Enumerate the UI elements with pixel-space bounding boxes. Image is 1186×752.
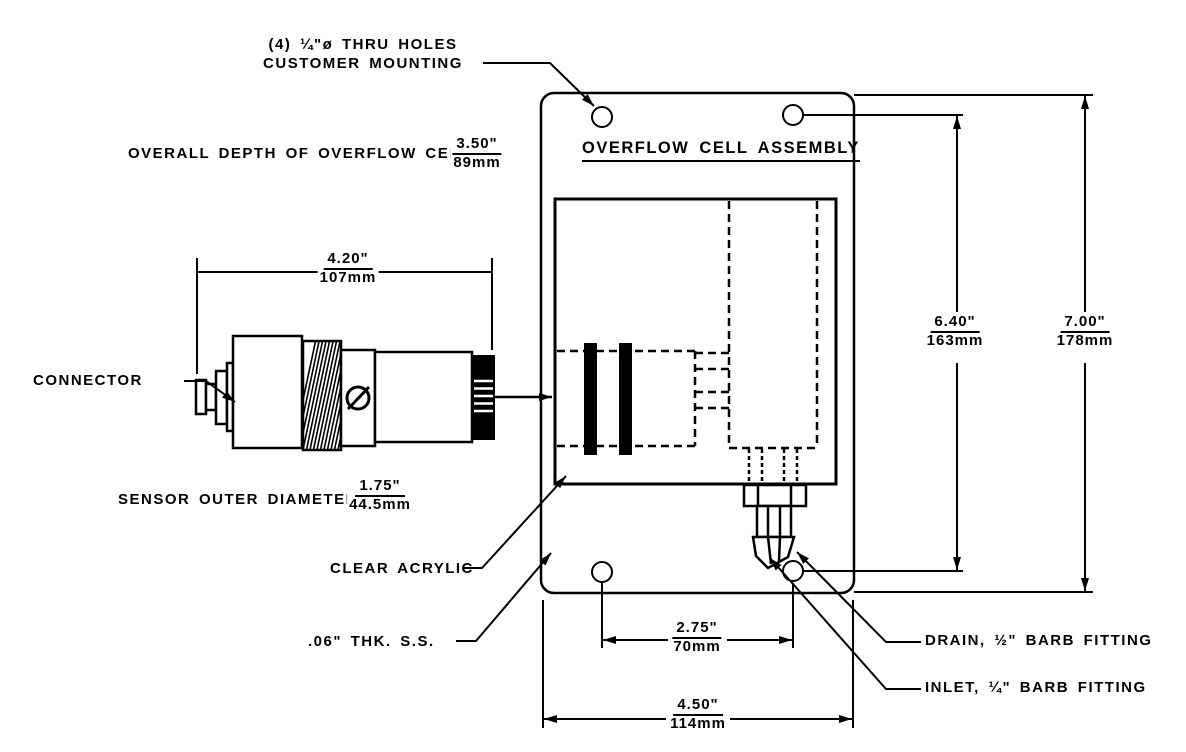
hole-span-height-dimension: 6.40" 163mm — [925, 314, 986, 350]
leader-thru-holes — [483, 63, 594, 106]
thru-holes-callout: (4) ¼"ø THRU HOLES CUSTOMER MOUNTING — [248, 36, 478, 74]
mounting-hole-bottom-left — [592, 562, 612, 582]
sensor-od-label: SENSOR OUTER DIAMETER — [118, 491, 358, 510]
assembly-title: OVERFLOW CELL ASSEMBLY — [582, 139, 860, 162]
sensor-barrel — [375, 352, 472, 442]
drain-fitting-body — [757, 506, 791, 537]
hole-span-width-dimension: 2.75" 70mm — [670, 620, 723, 656]
sensor-od-inches: 1.75" — [355, 478, 404, 497]
overall-depth-label: OVERALL DEPTH OF OVERFLOW CELL — [128, 145, 471, 164]
mounting-hole-top-right — [783, 105, 803, 125]
sensor-od-dimension: 1.75" 44.5mm — [347, 478, 413, 514]
connector-label: CONNECTOR — [33, 372, 143, 391]
inlet-label: INLET, ¼" BARB FITTING — [925, 679, 1147, 698]
thk-ss-label: .06" THK. S.S. — [308, 633, 435, 652]
overall-depth-inches: 3.50" — [452, 136, 501, 155]
sensor-length-inches: 4.20" — [323, 251, 372, 270]
sensor-hex-body — [233, 336, 302, 448]
plate-height-mm: 178mm — [1057, 333, 1114, 350]
plate-width-dimension: 4.50" 114mm — [668, 697, 728, 733]
sensor-od-mm: 44.5mm — [349, 497, 411, 514]
hole-span-height-inches: 6.40" — [930, 314, 979, 333]
inlet-port-lines — [784, 449, 797, 484]
overall-depth-mm: 89mm — [452, 155, 501, 172]
sensor-tip — [472, 355, 495, 440]
hole-span-width-inches: 2.75" — [672, 620, 721, 639]
mounting-hole-top-left — [592, 107, 612, 127]
clear-acrylic-label: CLEAR ACRYLIC — [330, 560, 474, 579]
plate-height-dimension: 7.00" 178mm — [1055, 314, 1116, 350]
plate-width-mm: 114mm — [670, 716, 726, 733]
plate-width-inches: 4.50" — [673, 697, 722, 716]
plate-height-inches: 7.00" — [1060, 314, 1109, 333]
acrylic-cell — [555, 199, 836, 484]
hole-span-width-mm: 70mm — [672, 639, 721, 656]
drain-fitting — [744, 485, 806, 568]
drain-label: DRAIN, ½" BARB FITTING — [925, 632, 1152, 651]
sensor-length-mm: 107mm — [320, 270, 377, 287]
sensor-length-dimension: 4.20" 107mm — [318, 251, 379, 287]
technical-drawing-overflow-cell: (4) ¼"ø THRU HOLES CUSTOMER MOUNTING OVE… — [0, 0, 1186, 752]
overflow-chamber-outline — [729, 201, 817, 448]
oring-bar-2 — [619, 343, 632, 455]
overall-depth-dimension: 3.50" 89mm — [450, 136, 503, 172]
drain-port-lines — [749, 449, 762, 484]
leader-drain — [797, 552, 921, 642]
oring-bar-1 — [584, 343, 597, 455]
mounting-hole-bottom-right — [783, 561, 803, 581]
sensor-hidden-outline — [557, 351, 729, 446]
hole-span-height-mm: 163mm — [927, 333, 984, 350]
drain-fitting-hex — [744, 485, 806, 506]
thru-holes-line2: CUSTOMER MOUNTING — [248, 55, 478, 74]
thru-holes-line1: (4) ¼"ø THRU HOLES — [248, 36, 478, 55]
